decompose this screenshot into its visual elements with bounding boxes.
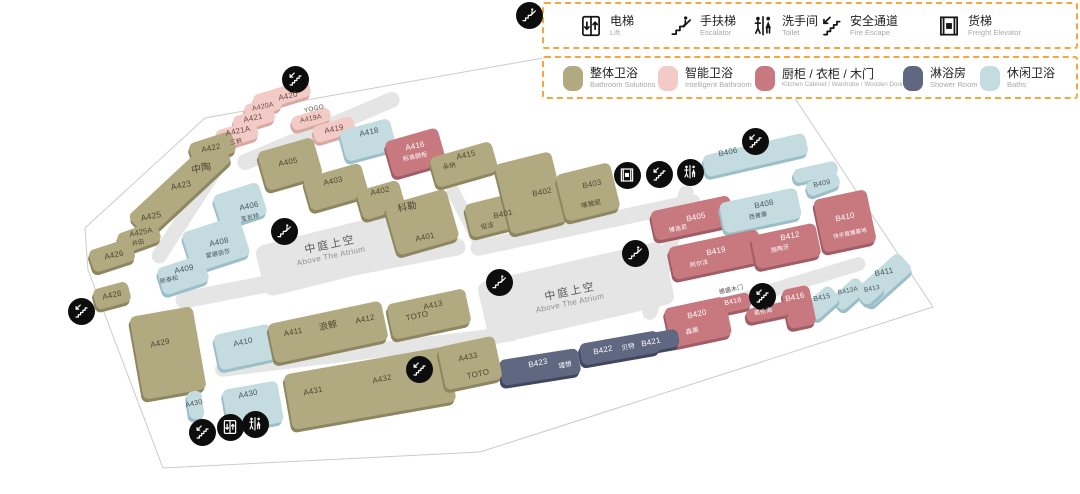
fire-escape-icon [282,66,309,93]
legend-label-en: Escalator [700,29,736,37]
legend-item-baths: 休闲卫浴 Baths [980,66,1055,91]
color-swatch [755,66,775,91]
legend-item-shower-room: 淋浴房 Shower Room [903,66,978,91]
fire-escape-icon [68,298,95,325]
legend-label-zh: 淋浴房 [930,67,978,81]
fire-escape-icon [742,128,769,155]
legend-label-en: Lift [610,29,634,37]
legend-label-zh: 手扶梯 [700,15,736,29]
legend-label-zh: 整体卫浴 [590,67,655,81]
legend-label-zh: 电梯 [610,15,634,29]
toilet-icon [242,411,269,438]
legend-label-en: Baths [1007,81,1055,89]
escalator-icon [668,13,694,39]
legend-label-en: Toilet [782,29,818,37]
escalator-icon [486,269,513,296]
legend-label-zh: 安全通道 [850,15,898,29]
legend-label-en: Intelligent Bathroom [685,81,752,89]
lift-icon [578,13,604,39]
escalator-icon [622,240,649,267]
color-swatch [563,66,583,91]
color-swatch [980,66,1000,91]
legend-label-zh: 智能卫浴 [685,67,752,81]
fire-escape-icon [189,419,216,446]
legend-item-escalator: 手扶梯 Escalator [668,13,736,39]
legend-label-zh: 休闲卫浴 [1007,67,1055,81]
legend-label-en: Shower Room [930,81,978,89]
legend-label-zh: 厨柜 / 衣柜 / 木门 [782,68,906,82]
freight-elevator-icon [936,13,962,39]
toilet-icon [677,159,704,186]
facility-legend: 电梯 Lift 手扶梯 Escalator 洗手间 Toilet 安全通道 Fi… [542,2,1078,49]
fire-escape-icon [818,13,844,39]
legend-item-fire-escape: 安全通道 Fire Escape [818,13,898,39]
color-swatch [658,66,678,91]
lift-icon [217,414,244,441]
mall-floorplan: 中庭上空Above The Atrium中庭上空Above The Atrium… [0,0,1080,494]
legend-label-en: Bathroom Solutions [590,81,655,89]
fire-escape-icon [646,161,673,188]
legend-item-intelligent-bathroom: 智能卫浴 Intelligent Bathroom [658,66,752,91]
category-legend: 整体卫浴 Bathroom Solutions 智能卫浴 Intelligent… [542,56,1078,99]
legend-label-en: Fire Escape [850,29,898,37]
color-swatch [903,66,923,91]
fire-escape-icon [406,356,433,383]
legend-label-zh: 洗手间 [782,15,818,29]
legend-label-en: Freight Elevator [968,29,1021,37]
legend-item-lift: 电梯 Lift [578,13,634,39]
legend-label-zh: 货梯 [968,15,1021,29]
legend-item-freight-elevator: 货梯 Freight Elevator [936,13,1021,39]
legend-item-kitchen-cabinet: 厨柜 / 衣柜 / 木门 Kitchen Cabinet / Wardrobe … [755,66,906,91]
legend-label-en: Kitchen Cabinet / Wardrobe / Wooden Door… [782,82,906,89]
freight-elevator-icon [614,162,641,189]
legend-item-bathroom-solutions: 整体卫浴 Bathroom Solutions [563,66,655,91]
escalator-icon [271,218,298,245]
toilet-icon [750,13,776,39]
escalator-icon [516,2,543,29]
legend-item-toilet: 洗手间 Toilet [750,13,818,39]
